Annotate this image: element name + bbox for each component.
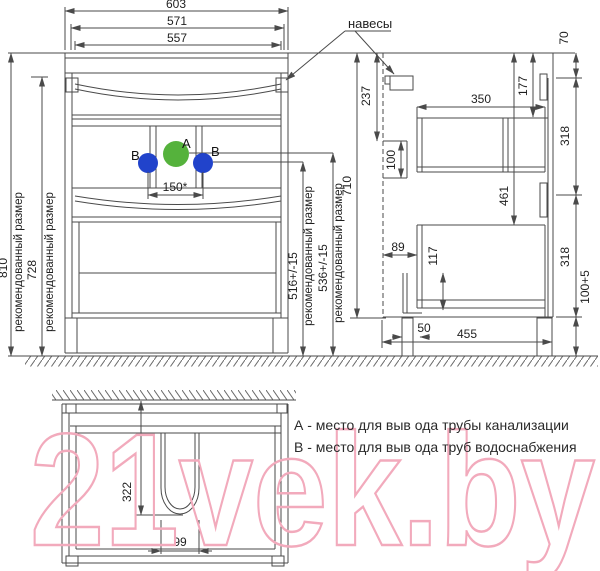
dim-318-upper-label: 318 bbox=[558, 126, 572, 146]
technical-drawing-page: A B B 603 571 557 810 рекомендованный ра… bbox=[0, 0, 600, 571]
dim-571-label: 571 bbox=[167, 14, 187, 28]
legend-line-a: А - место для выв ода трубы канализации bbox=[294, 417, 569, 433]
dim-461-label: 461 bbox=[497, 186, 511, 206]
drawer-curve bbox=[75, 196, 281, 205]
dim-117-label: 117 bbox=[426, 246, 440, 265]
dim-603-label: 603 bbox=[166, 0, 186, 11]
back-leg bbox=[402, 318, 413, 356]
dim-237-label: 237 bbox=[359, 86, 373, 106]
dim-50-label: 50 bbox=[417, 321, 431, 335]
front-leg bbox=[537, 318, 552, 356]
dim-728-note: рекомендованный размер bbox=[44, 192, 56, 332]
point-a-label: A bbox=[182, 136, 191, 151]
side-hanger bbox=[390, 76, 413, 90]
dim-100plus5-label: 100+5 bbox=[578, 270, 592, 304]
point-b-left-label: B bbox=[131, 148, 140, 163]
floor-hatch bbox=[25, 357, 598, 367]
dim-455-label: 455 bbox=[457, 327, 477, 341]
dim-318-lower-label: 318 bbox=[558, 247, 572, 267]
side-view bbox=[383, 53, 553, 356]
legend-line-b: В - место для выв ода труб водоснабжения bbox=[294, 439, 577, 455]
dim-100-label: 100 bbox=[384, 150, 398, 170]
vanity-cabinet-drawing: A B B 603 571 557 810 рекомендованный ра… bbox=[0, 0, 600, 571]
floor bbox=[25, 356, 598, 367]
basin-curve bbox=[75, 84, 281, 95]
hangers-callout: навесы bbox=[286, 16, 394, 80]
dim-810-label: 810 bbox=[0, 258, 10, 278]
hangers-label: навесы bbox=[348, 16, 392, 31]
dim-516-note: рекомендованный размер bbox=[303, 186, 315, 326]
dim-728-label: 728 bbox=[25, 260, 39, 280]
dim-70-label: 70 bbox=[557, 31, 571, 45]
dim-810-note: рекомендованный размер bbox=[13, 192, 25, 332]
dim-89-label: 89 bbox=[391, 240, 405, 254]
dim-177-label: 177 bbox=[516, 76, 530, 96]
point-b-right-label: B bbox=[211, 144, 220, 159]
dim-710-label: 710 bbox=[340, 176, 354, 196]
dim-516-label: 516+/-15 bbox=[286, 252, 300, 300]
wall-hatch bbox=[52, 390, 296, 400]
dim-557-label: 557 bbox=[167, 31, 187, 45]
point-b-right-marker bbox=[193, 153, 213, 173]
dim-150-label: 150* bbox=[163, 180, 188, 194]
dim-536-note: рекомендованный размер bbox=[333, 183, 345, 323]
dim-350-label: 350 bbox=[471, 92, 491, 106]
point-b-left-marker bbox=[138, 153, 158, 173]
drawer-front-slot-upper bbox=[540, 74, 547, 100]
drawer-front-slot-lower bbox=[540, 183, 547, 217]
dim-536-label: 536+/-15 bbox=[316, 244, 330, 292]
